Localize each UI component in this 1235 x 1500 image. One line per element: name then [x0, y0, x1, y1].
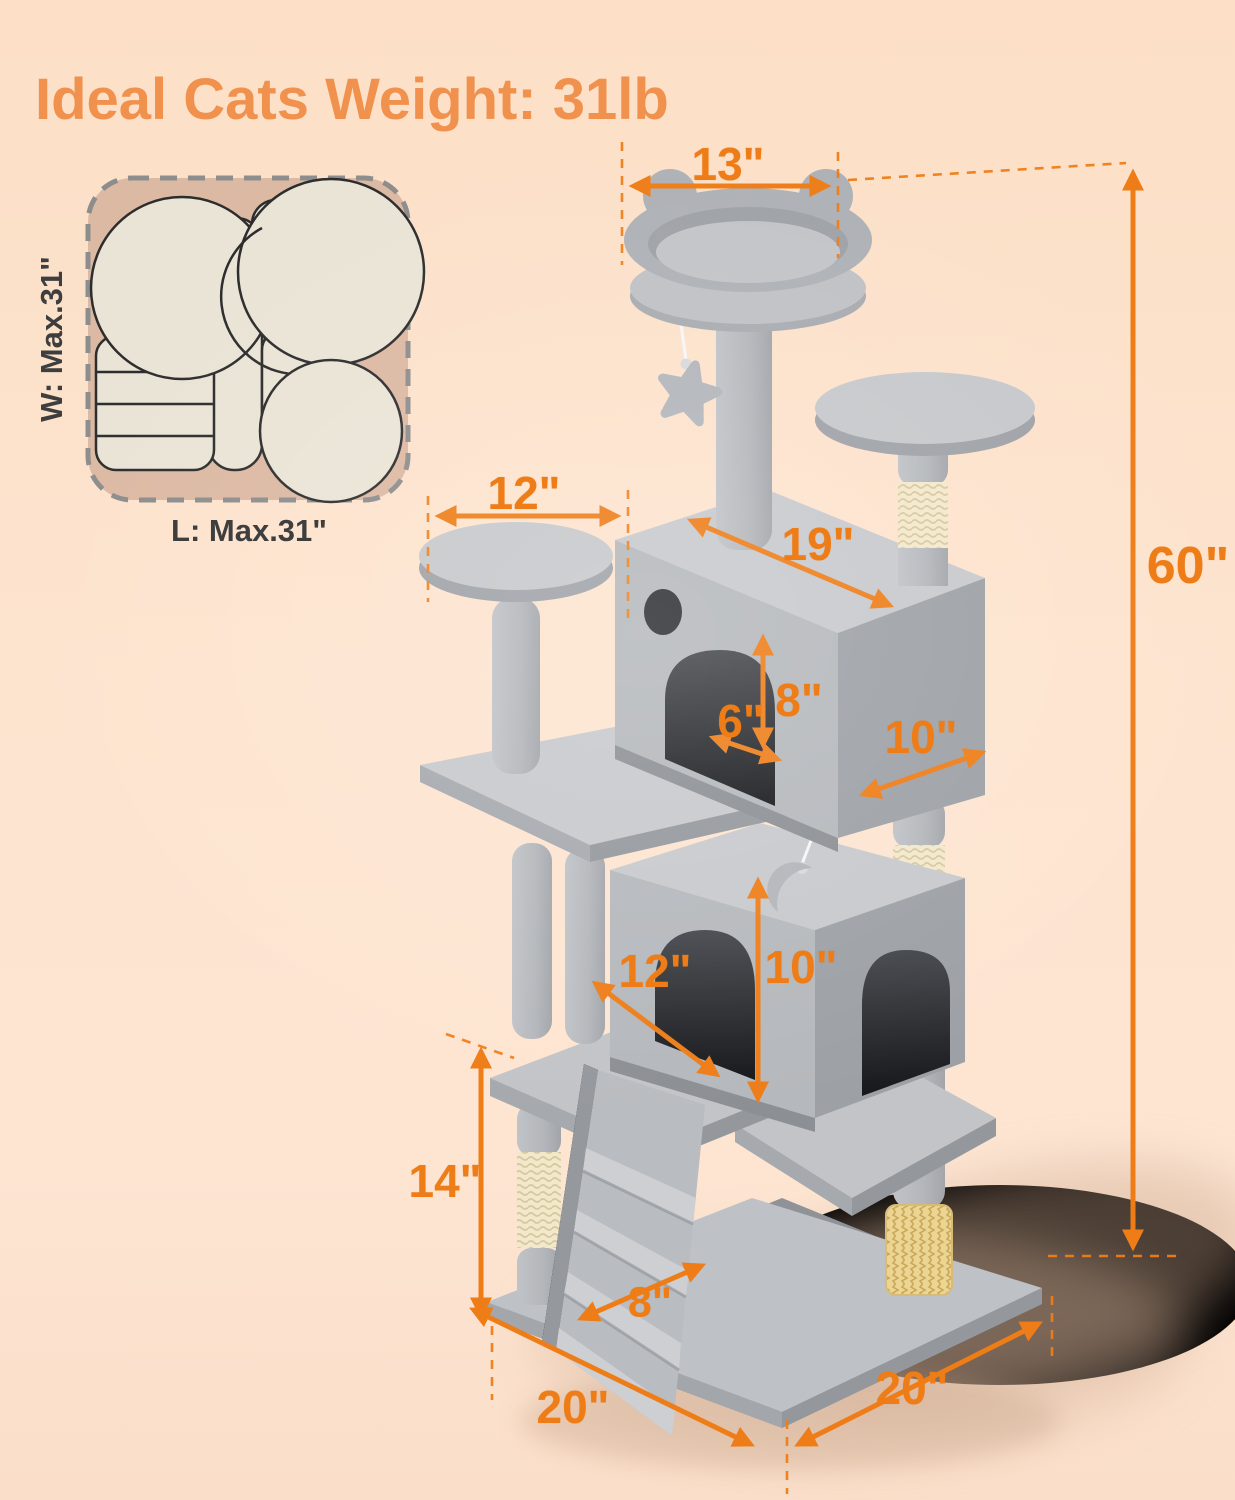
- footprint-length-label: L: Max.31": [171, 513, 327, 549]
- page-title: Ideal Cats Weight: 31lb: [35, 66, 735, 133]
- dim-label-lower-section-height: 14": [409, 1154, 482, 1208]
- dim-label-base-length-left: 20": [537, 1380, 610, 1434]
- dim-label-lower-condo-width: 12": [619, 944, 692, 998]
- dim-label-top-perch-width: 13": [692, 137, 765, 191]
- dim-label-base-length-right: 20": [876, 1361, 949, 1415]
- dim-label-entrance-height: 8": [775, 673, 822, 727]
- footprint-width-label: W: Max.31": [34, 256, 70, 422]
- footprint-diagram: [88, 178, 424, 502]
- dim-label-upper-condo-depth: 10": [885, 710, 958, 764]
- dim-label-total-height: 60": [1147, 536, 1230, 596]
- dim-label-ramp-width: 8": [628, 1279, 672, 1328]
- cat-brush-icon: [886, 1205, 952, 1295]
- dim-label-upper-condo-length: 19": [782, 517, 855, 571]
- cat-tree-illustration: [419, 169, 1042, 1436]
- dim-label-left-platform-width: 12": [488, 466, 561, 520]
- scene-graphics: [0, 0, 1235, 1500]
- dim-label-lower-condo-height: 10": [765, 940, 838, 994]
- dim-label-entrance-width: 6": [717, 694, 764, 748]
- top-perch: [624, 169, 872, 332]
- product-dimension-image: Ideal Cats Weight: 31lb W: Max.31" L: Ma…: [0, 0, 1235, 1500]
